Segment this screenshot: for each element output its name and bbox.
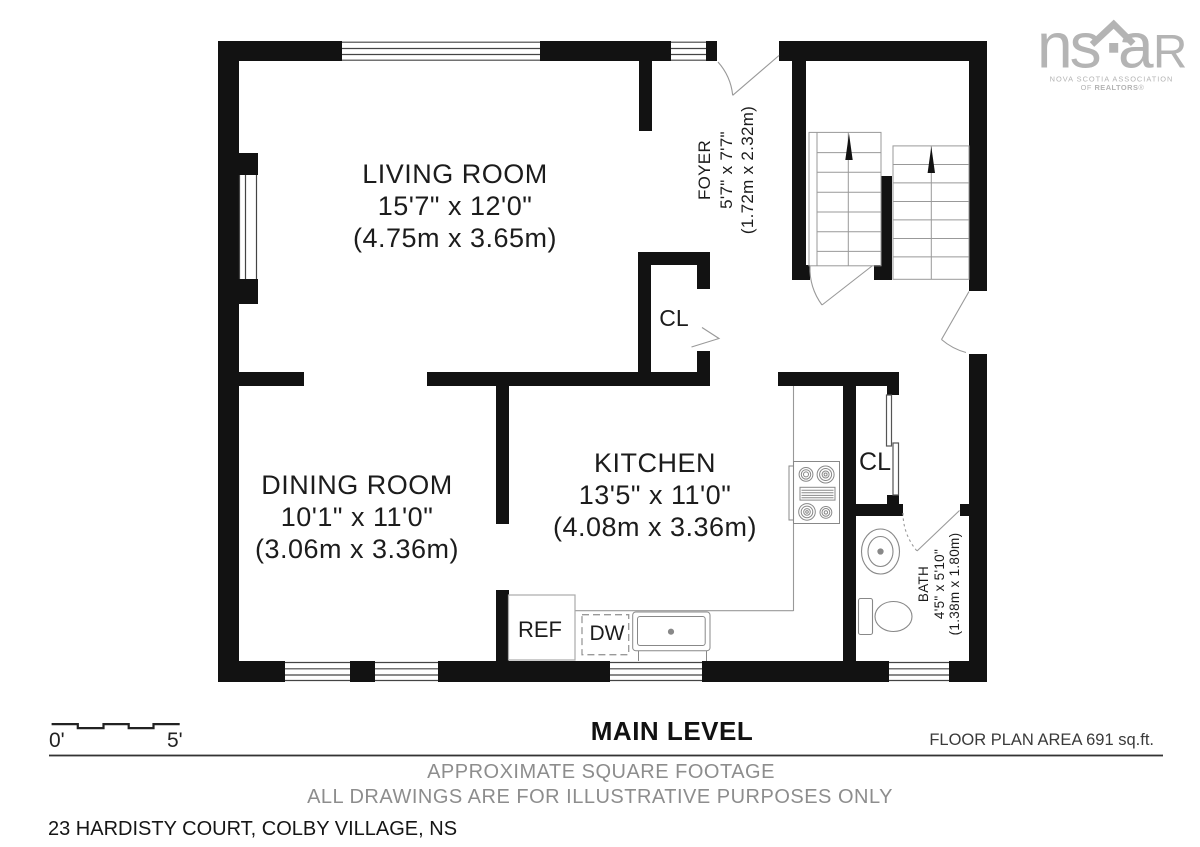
svg-text:ns: ns <box>1037 10 1100 82</box>
svg-text:R: R <box>1153 26 1187 79</box>
svg-text:a: a <box>1118 10 1154 82</box>
svg-text:OF REALTORS®: OF REALTORS® <box>1081 83 1145 92</box>
